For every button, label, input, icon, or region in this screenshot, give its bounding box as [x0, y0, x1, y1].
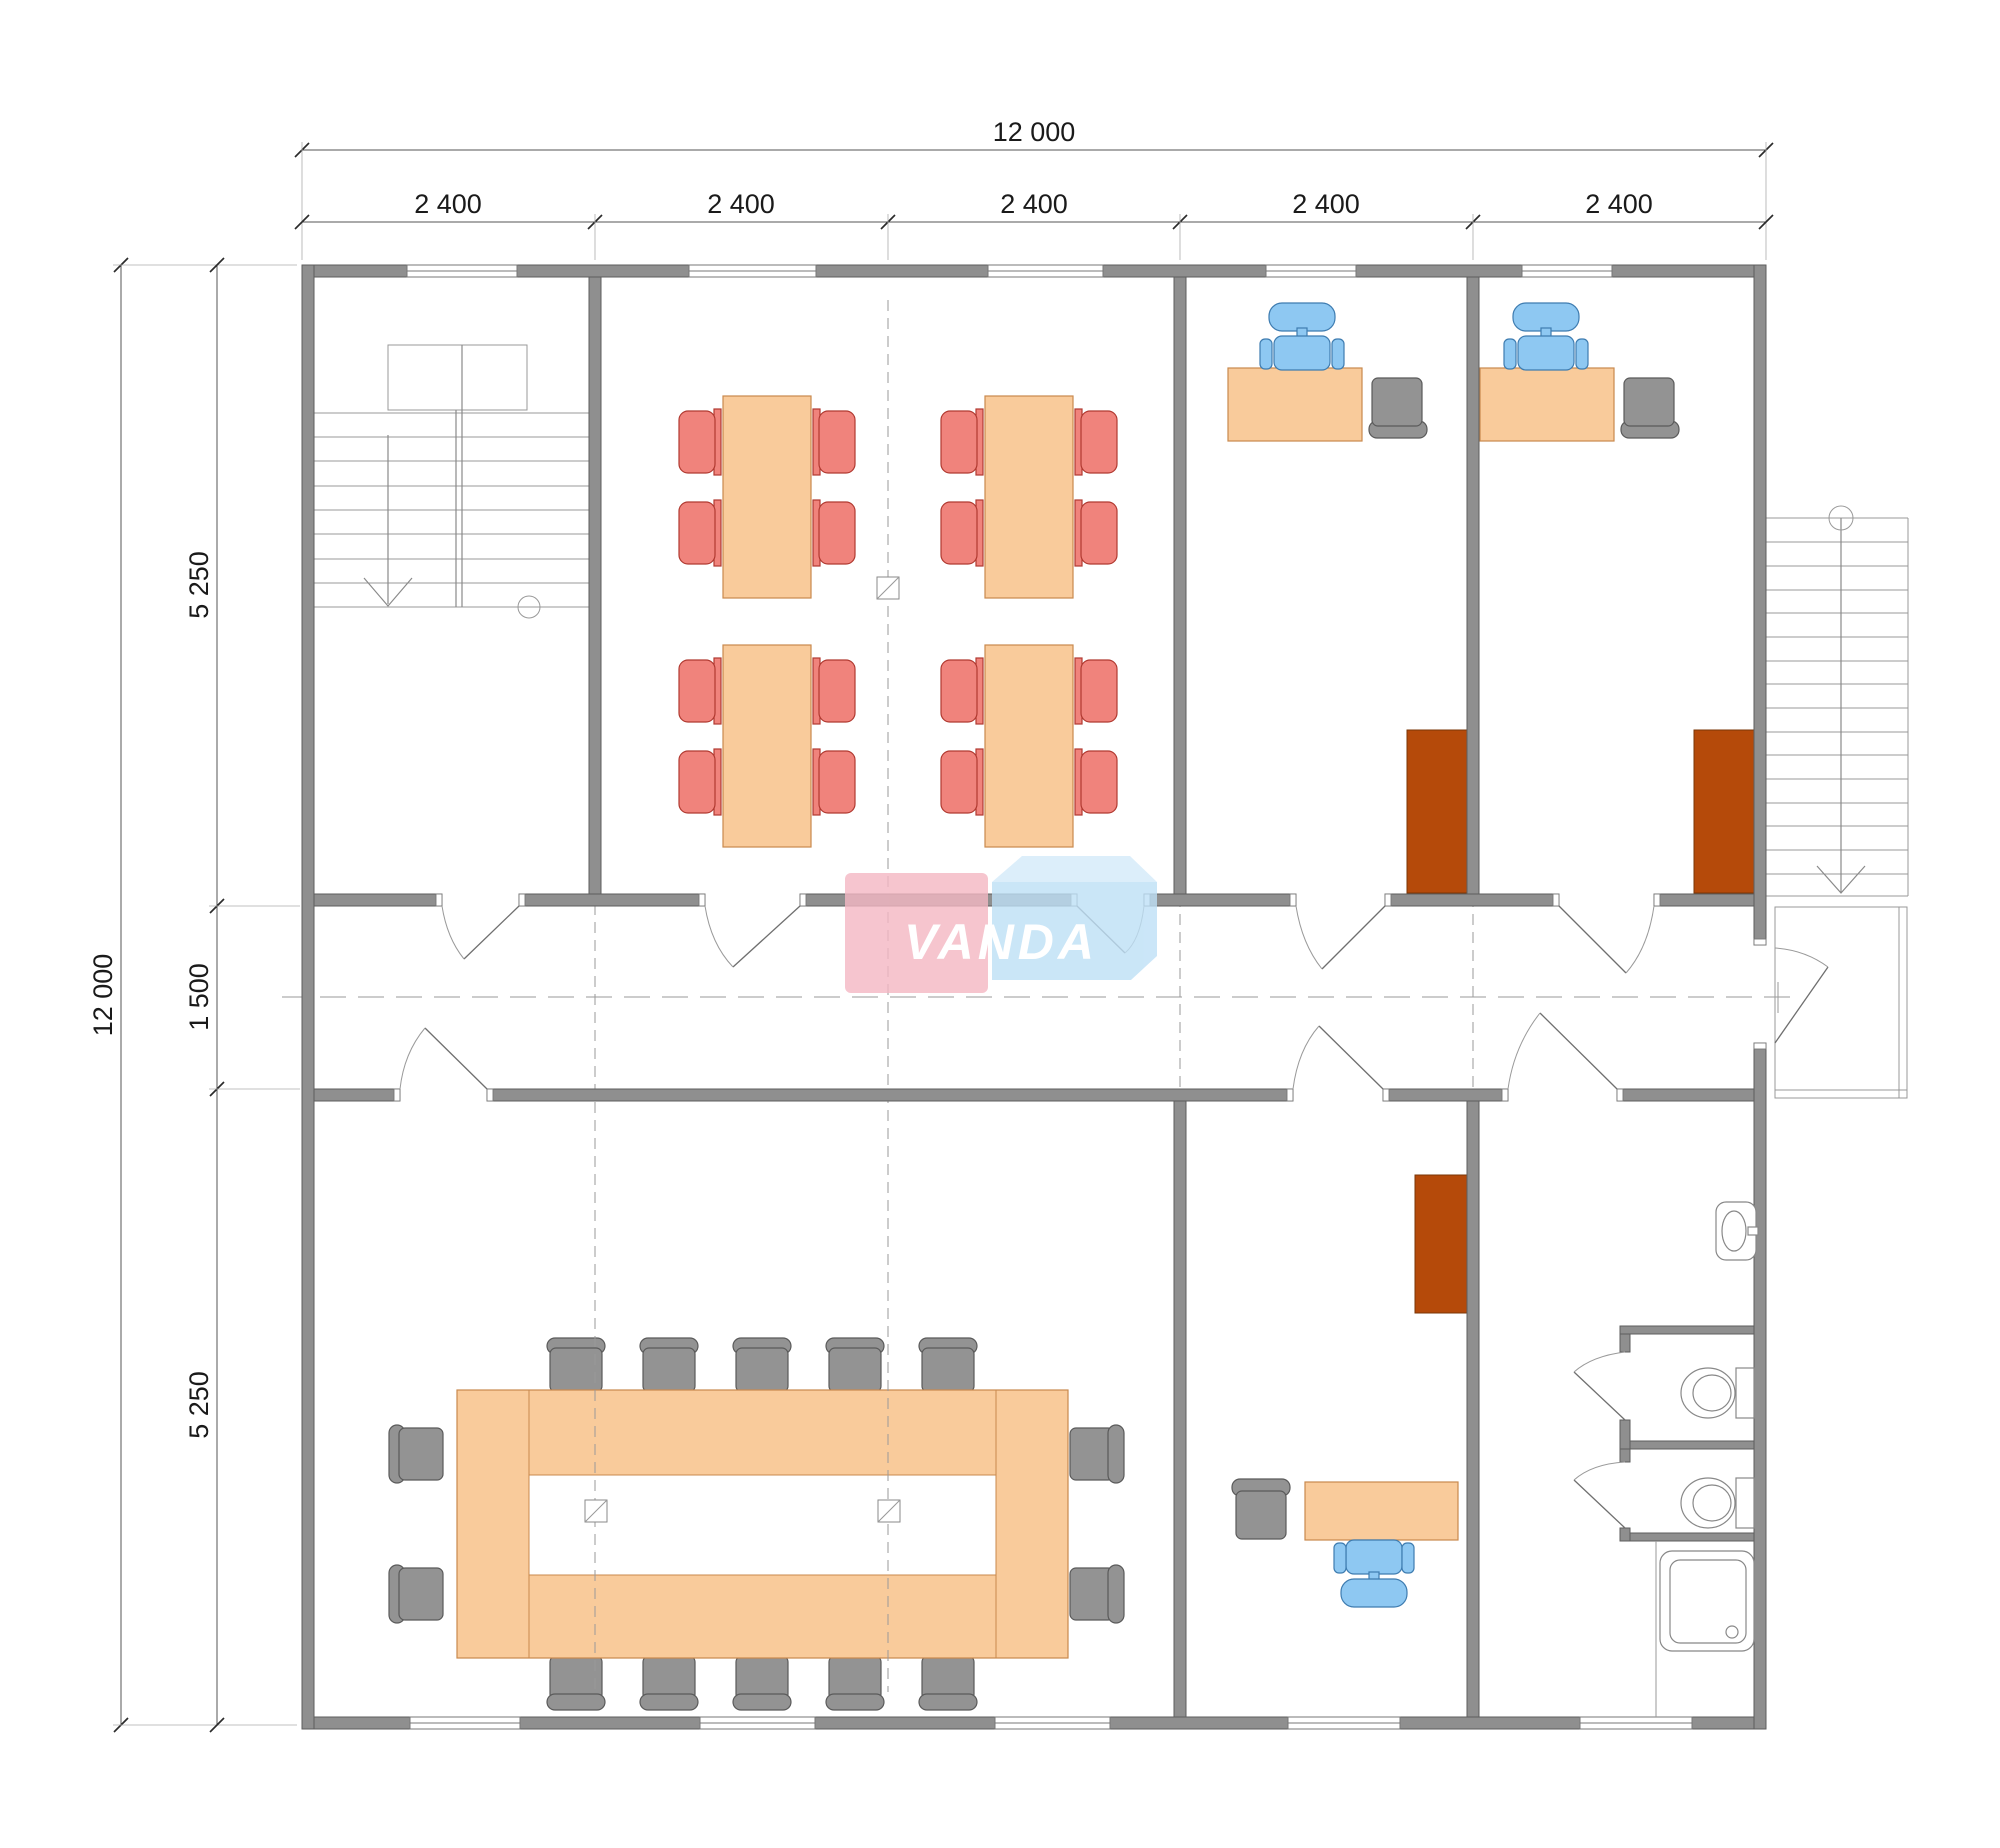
conference-table-void — [529, 1475, 996, 1575]
office-desk — [1305, 1482, 1458, 1540]
exterior-wall-right — [1754, 1043, 1766, 1729]
window — [410, 1717, 520, 1729]
dim-bay: 2 400 — [707, 189, 775, 219]
dim-left-middle: 1 500 — [184, 963, 214, 1031]
window — [689, 265, 816, 277]
dim-bay: 2 400 — [1585, 189, 1653, 219]
window — [1522, 265, 1612, 277]
partition-wall — [1174, 1101, 1186, 1717]
window — [1580, 1717, 1692, 1729]
sink — [1716, 1202, 1758, 1260]
partition-wall — [1467, 277, 1479, 894]
exterior-wall-left — [302, 265, 314, 1729]
office-desk — [1228, 368, 1362, 441]
vanda-logo: VANDA — [845, 856, 1157, 993]
classroom-table — [723, 396, 811, 598]
cabinet — [1694, 730, 1754, 893]
partition-wall — [589, 277, 601, 894]
office-desk — [1480, 368, 1614, 441]
classroom-table — [985, 645, 1073, 847]
dim-left-top: 5 250 — [184, 551, 214, 619]
toilet — [1681, 1368, 1754, 1418]
dim-left-bottom: 5 250 — [184, 1371, 214, 1439]
cabinet — [1407, 730, 1467, 893]
partition-wall — [1467, 1101, 1479, 1717]
window — [407, 265, 517, 277]
classroom-table — [985, 396, 1073, 598]
conference-furniture — [389, 1338, 1124, 1710]
window — [995, 1717, 1110, 1729]
dim-bay: 2 400 — [1292, 189, 1360, 219]
guest-chair-gray — [1621, 378, 1679, 438]
window — [988, 265, 1103, 277]
classroom-table — [723, 645, 811, 847]
toilet — [1681, 1478, 1754, 1528]
partition-wall — [1174, 277, 1186, 894]
dim-top-total: 12 000 — [993, 117, 1076, 147]
guest-chair-gray — [1369, 378, 1427, 438]
dim-left-total: 12 000 — [88, 954, 118, 1037]
window — [1266, 265, 1356, 277]
cabinet — [1415, 1175, 1467, 1313]
floor-plan-drawing: 12 000 2 400 2 400 2 400 2 400 2 400 12 … — [0, 0, 2000, 1848]
floor-plan-page: 12 000 2 400 2 400 2 400 2 400 2 400 12 … — [0, 0, 2000, 1848]
guest-chair-gray — [1232, 1479, 1290, 1539]
window — [700, 1717, 815, 1729]
dim-bay: 2 400 — [1000, 189, 1068, 219]
exterior-wall-right — [1754, 265, 1766, 945]
window — [1288, 1717, 1400, 1729]
dim-bay: 2 400 — [414, 189, 482, 219]
logo-wordmark: VANDA — [904, 914, 1098, 970]
